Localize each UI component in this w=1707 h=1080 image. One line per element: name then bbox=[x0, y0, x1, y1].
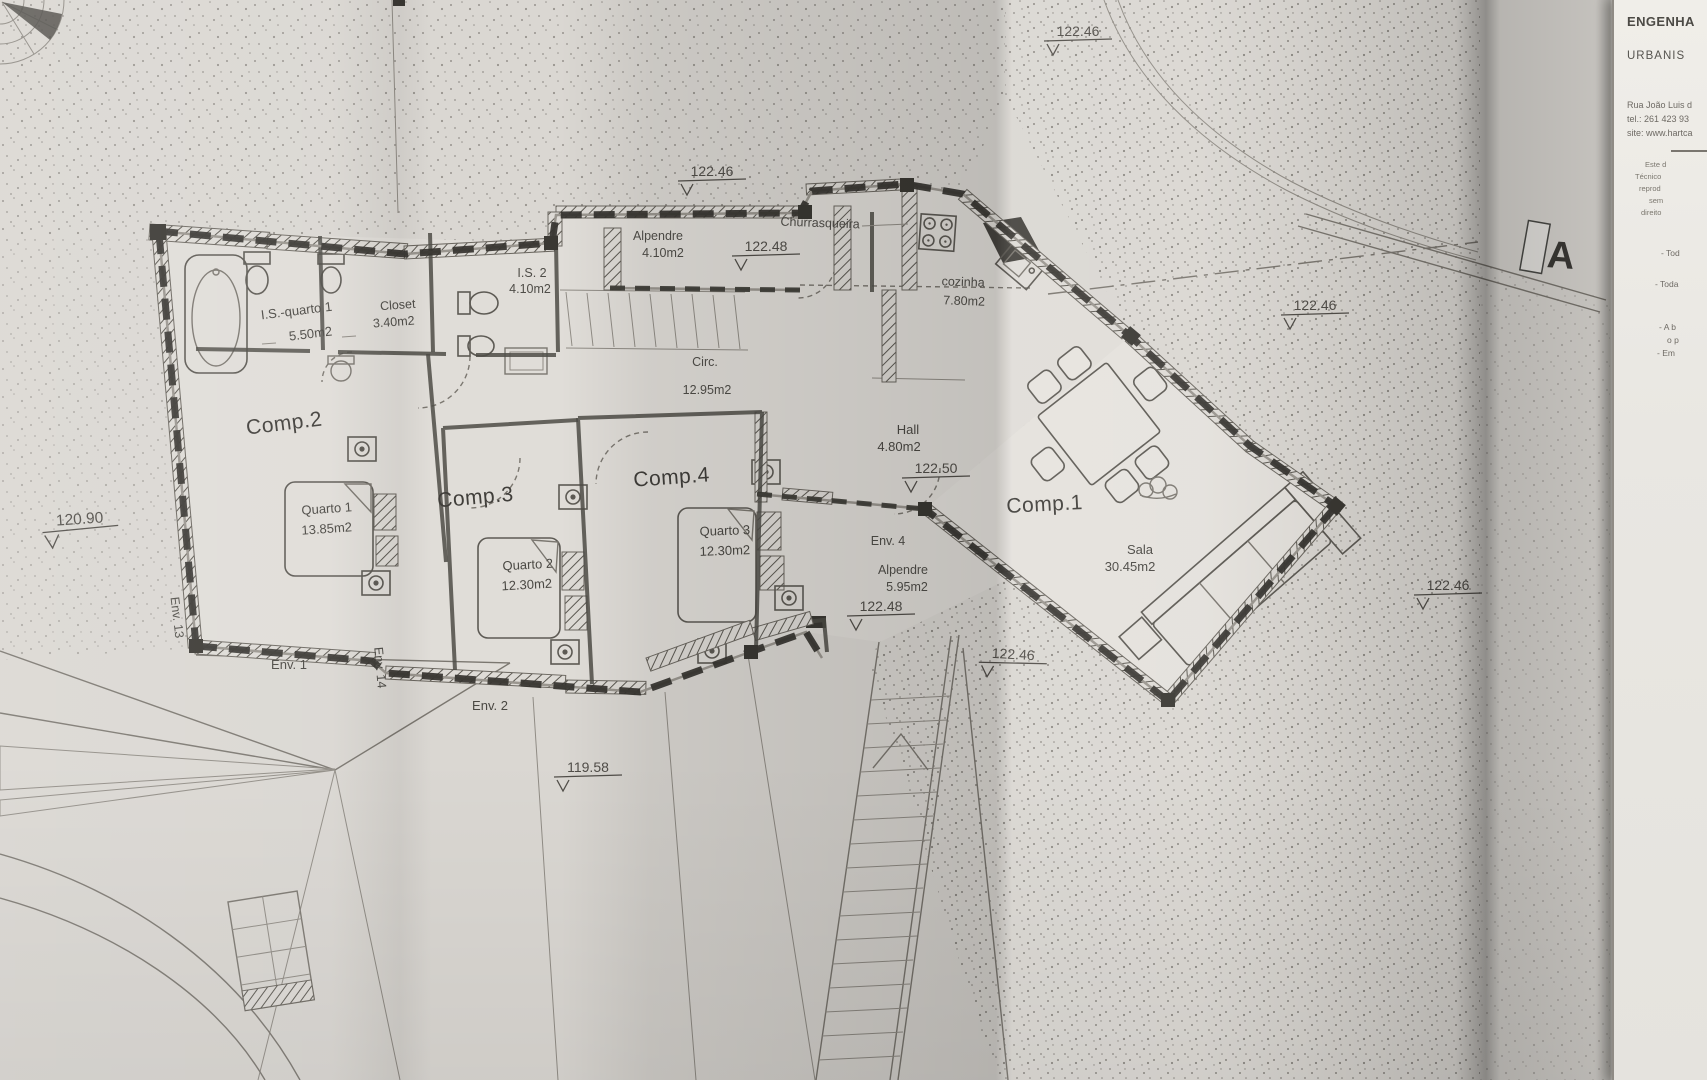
section-marker-letter: A bbox=[1546, 234, 1576, 278]
titleblock-address-line: Rua João Luis d bbox=[1627, 98, 1707, 112]
svg-text:119.58: 119.58 bbox=[567, 759, 609, 775]
label-is2: I.S. 2 bbox=[517, 266, 546, 280]
svg-text:122.48: 122.48 bbox=[745, 238, 788, 254]
titleblock-notes: - Tod - Toda - A b o p - Em bbox=[1627, 247, 1707, 360]
svg-text:122.46: 122.46 bbox=[1057, 23, 1100, 39]
note-line: - Toda bbox=[1655, 278, 1707, 291]
label-env1: Env. 1 bbox=[271, 657, 307, 672]
label-is2-area: 4.10m2 bbox=[509, 282, 551, 296]
label-env2: Env. 2 bbox=[472, 698, 508, 713]
label-circ: Circ. bbox=[692, 355, 718, 369]
label-quarto2: Quarto 2 bbox=[502, 556, 553, 574]
label-cozinha-area: 7.80m2 bbox=[943, 293, 985, 308]
label-cozinha: cozinha bbox=[941, 274, 985, 289]
svg-text:122.50: 122.50 bbox=[915, 460, 958, 476]
titleblock-address-line: site: www.hartca bbox=[1627, 126, 1707, 140]
label-closet-area: 3.40m2 bbox=[372, 314, 415, 331]
label-sala: Sala bbox=[1127, 542, 1154, 557]
svg-text:122.46: 122.46 bbox=[1427, 577, 1470, 593]
titleblock-address: Rua João Luis d tel.: 261 423 93 site: w… bbox=[1627, 98, 1707, 140]
notice-line: sem bbox=[1649, 195, 1707, 207]
label-closet: Closet bbox=[380, 297, 417, 313]
label-alpendre-north-area: 4.10m2 bbox=[642, 246, 684, 260]
label-churrasqueira: Churrasqueira bbox=[780, 215, 860, 232]
label-quarto3: Quarto 3 bbox=[699, 522, 750, 539]
note-line: - Tod bbox=[1661, 247, 1707, 260]
label-hall: Hall bbox=[897, 422, 920, 437]
note-line: - A b bbox=[1659, 321, 1707, 334]
titleblock-notice: Este d Técnico reprod sem direito bbox=[1627, 159, 1707, 219]
svg-text:122.46: 122.46 bbox=[991, 645, 1035, 663]
photographed-floorplan-sheet: 122.46 122.48 122.46 122.46 122.50 122.4… bbox=[0, 0, 1707, 1080]
label-alpendre-north: Alpendre bbox=[633, 229, 683, 243]
label-quarto2-area: 12.30m2 bbox=[501, 576, 552, 594]
label-env4-area: 5.95m2 bbox=[886, 580, 928, 594]
notice-line: Técnico bbox=[1635, 171, 1707, 183]
svg-text:120.90: 120.90 bbox=[55, 509, 104, 529]
label-circ-area: 12.95m2 bbox=[683, 383, 732, 397]
titleblock-panel: ENGENHA URBANIS Rua João Luis d tel.: 26… bbox=[1612, 0, 1707, 1080]
label-hall-area: 4.80m2 bbox=[877, 439, 920, 454]
label-comp1: Comp.1 bbox=[1006, 491, 1084, 518]
label-env4: Env. 4 bbox=[871, 534, 906, 548]
label-quarto3-area: 12.30m2 bbox=[699, 542, 750, 559]
svg-text:122.46: 122.46 bbox=[691, 163, 734, 179]
titleblock-company-line2: URBANIS bbox=[1627, 50, 1707, 62]
titleblock-company-line1: ENGENHA bbox=[1627, 14, 1707, 29]
notice-line: direito bbox=[1641, 207, 1707, 219]
titleblock-divider bbox=[1671, 150, 1707, 152]
label-env4-alpendre: Alpendre bbox=[878, 563, 928, 577]
label-sala-area: 30.45m2 bbox=[1105, 559, 1156, 574]
titleblock-address-line: tel.: 261 423 93 bbox=[1627, 112, 1707, 126]
floor-plan-drawing: 122.46 122.48 122.46 122.46 122.50 122.4… bbox=[0, 0, 1707, 1080]
notice-line: reprod bbox=[1639, 183, 1707, 195]
notice-line: Este d bbox=[1645, 159, 1707, 171]
note-line: o p bbox=[1667, 334, 1707, 347]
note-line: - Em bbox=[1657, 347, 1707, 360]
svg-text:122.46: 122.46 bbox=[1294, 297, 1337, 313]
svg-text:122.48: 122.48 bbox=[860, 598, 903, 614]
